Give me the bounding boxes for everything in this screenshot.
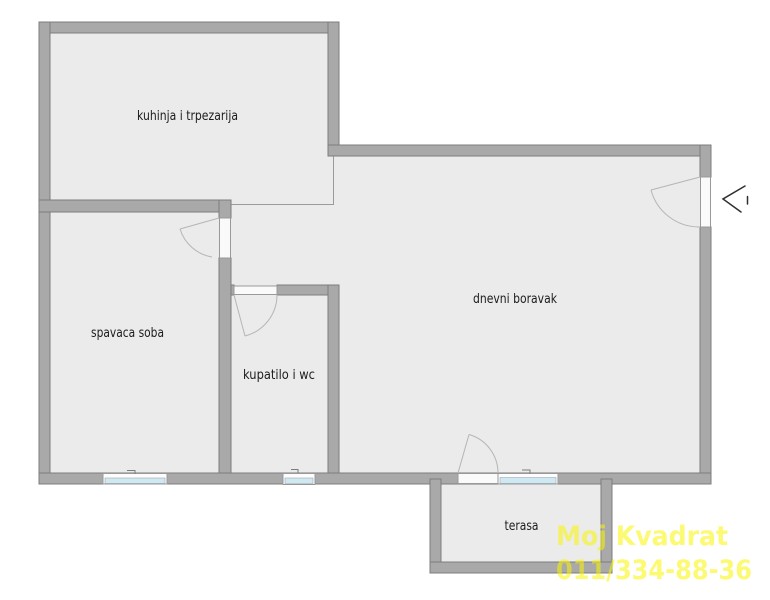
kitchen-label: kuhinja i trpezarija (137, 109, 238, 124)
entrance-arrow-chevron (723, 186, 745, 212)
floor-plan: kuhinja i trpezarija spavaca soba kupati… (0, 0, 770, 600)
bedroom-floor (50, 212, 219, 473)
terrace-window-glass (500, 478, 556, 484)
hallway-floor (231, 204, 334, 296)
wall-bedroom-below-door (219, 258, 231, 473)
bathroom-door-panel (234, 286, 277, 295)
wall-bedroom-above-door (219, 200, 231, 218)
wall-bathroom-right (328, 285, 339, 473)
bedroom-label: spavaca soba (91, 326, 164, 341)
floor-plan-canvas: kuhinja i trpezarija spavaca soba kupati… (0, 0, 770, 600)
wall-left-exterior (39, 22, 50, 484)
entrance-door-panel (701, 177, 711, 227)
wall-living-top (328, 145, 711, 156)
wall-right-below-entrance (700, 227, 711, 484)
bedroom-door-panel (220, 218, 231, 258)
bathroom-label: kupatilo i wc (243, 368, 315, 383)
wall-terrace-left (430, 479, 441, 573)
entrance-arrow-icon (723, 186, 748, 212)
bathroom-floor (231, 295, 328, 473)
living-room-label: dnevni boravak (473, 292, 557, 307)
watermark-phone-line: 011/334-88-36 (556, 555, 752, 586)
wall-right-above-entrance (700, 145, 711, 177)
wall-kitchen-right (328, 22, 339, 156)
wall-top-kitchen (39, 22, 339, 33)
living-room-floor (328, 156, 700, 473)
bedroom-window-glass (105, 478, 165, 484)
terrace-door-panel (458, 474, 498, 484)
wall-kitchen-bedroom (39, 200, 231, 212)
bathroom-window-glass (285, 478, 313, 484)
watermark-brand-line: Moj Kvadrat (556, 521, 728, 552)
terrace-label: terasa (505, 519, 539, 534)
